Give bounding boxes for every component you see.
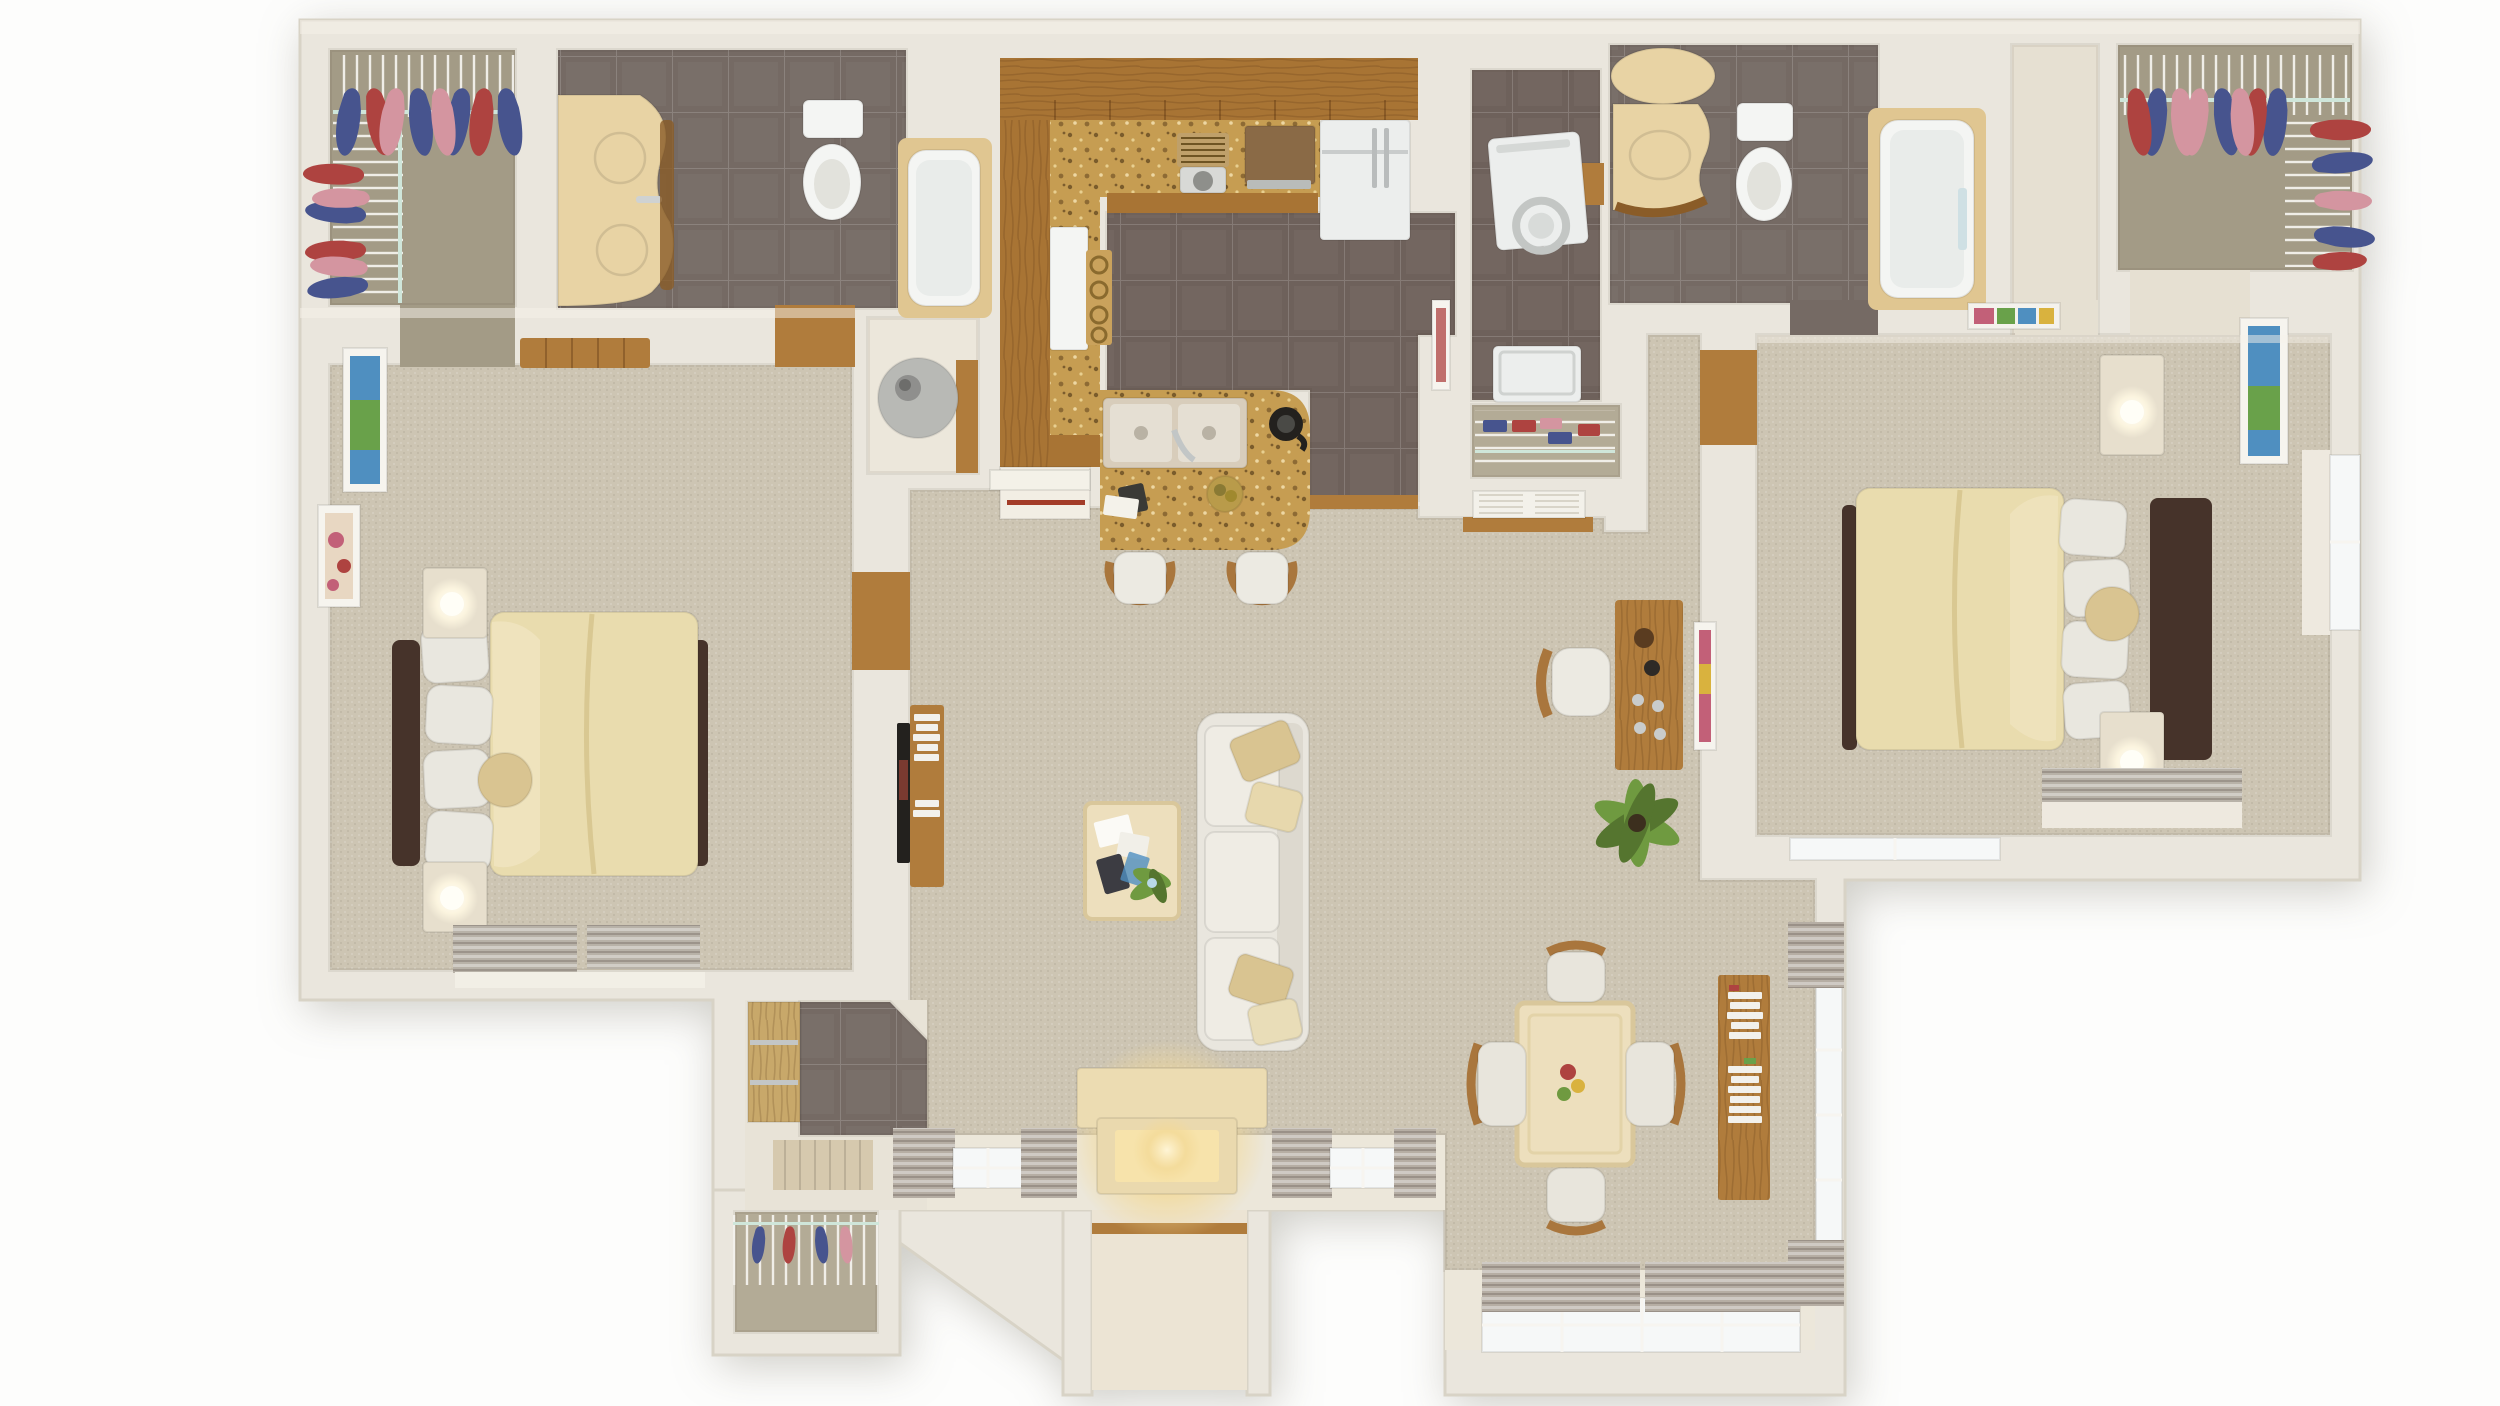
dining-chair-south xyxy=(1547,1168,1605,1231)
media-console xyxy=(910,705,944,887)
porch-wall-left xyxy=(1063,1210,1092,1395)
lamp-icon xyxy=(440,592,464,616)
floor-plan-stage xyxy=(0,0,2500,1406)
vanity2-counter xyxy=(1613,104,1710,211)
sofa xyxy=(1197,713,1309,1051)
coffee-table xyxy=(1085,803,1179,919)
sliding-door-rail xyxy=(750,1040,798,1045)
toilet2 xyxy=(1736,103,1793,221)
west-cabinet-grain xyxy=(1000,120,1050,467)
dresser xyxy=(520,338,650,368)
upper-cabinet-grain xyxy=(1000,58,1418,120)
fruit-bowl xyxy=(1207,476,1243,512)
water-heater xyxy=(878,358,958,438)
foyer-tile-pattern xyxy=(800,1002,927,1135)
sink-peninsula xyxy=(1100,390,1310,550)
dining-chair-north xyxy=(1547,945,1605,1002)
base-cabinet-strip xyxy=(1107,193,1318,213)
bar-stool xyxy=(1231,552,1293,604)
dryer xyxy=(1487,131,1589,255)
bedroom-left-door-threshold xyxy=(852,572,910,670)
accent-pillow-round xyxy=(478,753,532,807)
vanity-wood-edge xyxy=(660,120,674,290)
closet-right-door-gap xyxy=(2130,270,2250,335)
bed-left xyxy=(392,612,708,876)
desk-trinket xyxy=(1652,700,1664,712)
wall-art-floral-left xyxy=(318,505,360,607)
refrigerator xyxy=(1320,120,1410,240)
linen-closet-doors xyxy=(1473,491,1585,518)
accent-pillow-round2 xyxy=(2085,587,2139,641)
base-cabinet-corner xyxy=(1050,435,1100,467)
dining-table xyxy=(1517,1003,1633,1165)
book-spine xyxy=(1744,1058,1756,1064)
fridge-handle-icon xyxy=(1372,128,1377,188)
living-floor-vent xyxy=(990,470,1090,490)
sofa-cushion xyxy=(1205,832,1279,932)
comforter2-highlight xyxy=(2010,495,2058,741)
footboard2 xyxy=(1842,505,1857,750)
bedroom-right-door-threshold xyxy=(1700,350,1757,445)
vanity2-mirror xyxy=(1611,48,1715,104)
desk-trinket xyxy=(1634,722,1646,734)
drain-icon xyxy=(1134,426,1148,440)
sliding-door-closet xyxy=(748,1002,800,1122)
toilet xyxy=(803,100,863,220)
fireplace xyxy=(1067,1040,1267,1240)
desk-candle xyxy=(1644,660,1660,676)
comforter-highlight xyxy=(492,621,540,867)
foyer-door-mat xyxy=(773,1140,873,1190)
bookshelf xyxy=(1718,975,1770,1200)
porch-wall-right xyxy=(1247,1210,1270,1395)
tv-console xyxy=(897,705,944,887)
coffee-maker xyxy=(1177,133,1229,193)
drain-icon xyxy=(1202,426,1216,440)
nightstand-bottom xyxy=(423,862,487,932)
window-sill2 xyxy=(2042,802,2242,828)
sliding-door-rail xyxy=(750,1080,798,1085)
water-heater-closet-wood-edge xyxy=(956,360,978,473)
wall-art-landscape-left xyxy=(343,348,387,492)
shower-door-glass xyxy=(1958,188,1967,250)
cooktop-appliance xyxy=(1245,126,1315,189)
desk-trinket xyxy=(1632,694,1644,706)
dining-chair-west xyxy=(1471,1042,1526,1126)
nightstand2-top xyxy=(2100,355,2164,455)
headboard xyxy=(392,640,420,866)
floor-plan-render xyxy=(0,0,2500,1406)
bathtub-right xyxy=(1868,108,1986,310)
vanity-faucet xyxy=(636,196,662,203)
lamp-icon xyxy=(2120,400,2144,424)
window-sill xyxy=(455,972,705,988)
water-heater-pipe-opening xyxy=(899,379,911,391)
hall-right-floor xyxy=(2012,45,2098,335)
bedroom-right-window-east xyxy=(2302,450,2360,635)
fridge-handle2-icon xyxy=(1384,128,1389,188)
bar-stool xyxy=(1109,552,1171,604)
linen-door-threshold xyxy=(1463,517,1593,532)
diagonal-entry-wall xyxy=(900,1210,1063,1360)
book-spine xyxy=(1729,985,1739,991)
lamp-icon xyxy=(440,886,464,910)
desk-wall-art xyxy=(1694,622,1716,750)
bathtub-left xyxy=(898,138,992,318)
laundry-wall-art xyxy=(1432,300,1450,390)
storage-closet-rail xyxy=(733,1222,879,1225)
kitchen-living-threshold xyxy=(1310,495,1418,509)
dining-chair-east xyxy=(1626,1042,1681,1126)
hall-art-runner xyxy=(1968,303,2060,329)
bathroom-right-door-threshold xyxy=(1790,300,1878,335)
closet-left-rail-vertical xyxy=(398,117,402,303)
double-sink xyxy=(1103,398,1247,468)
nightstand-top xyxy=(423,568,487,638)
linen-closet-rail xyxy=(1475,450,1615,453)
desk-trinket xyxy=(1654,728,1666,740)
half-wall-trim xyxy=(1007,500,1085,505)
desk-candle xyxy=(1634,628,1654,648)
washer xyxy=(1493,346,1581,402)
